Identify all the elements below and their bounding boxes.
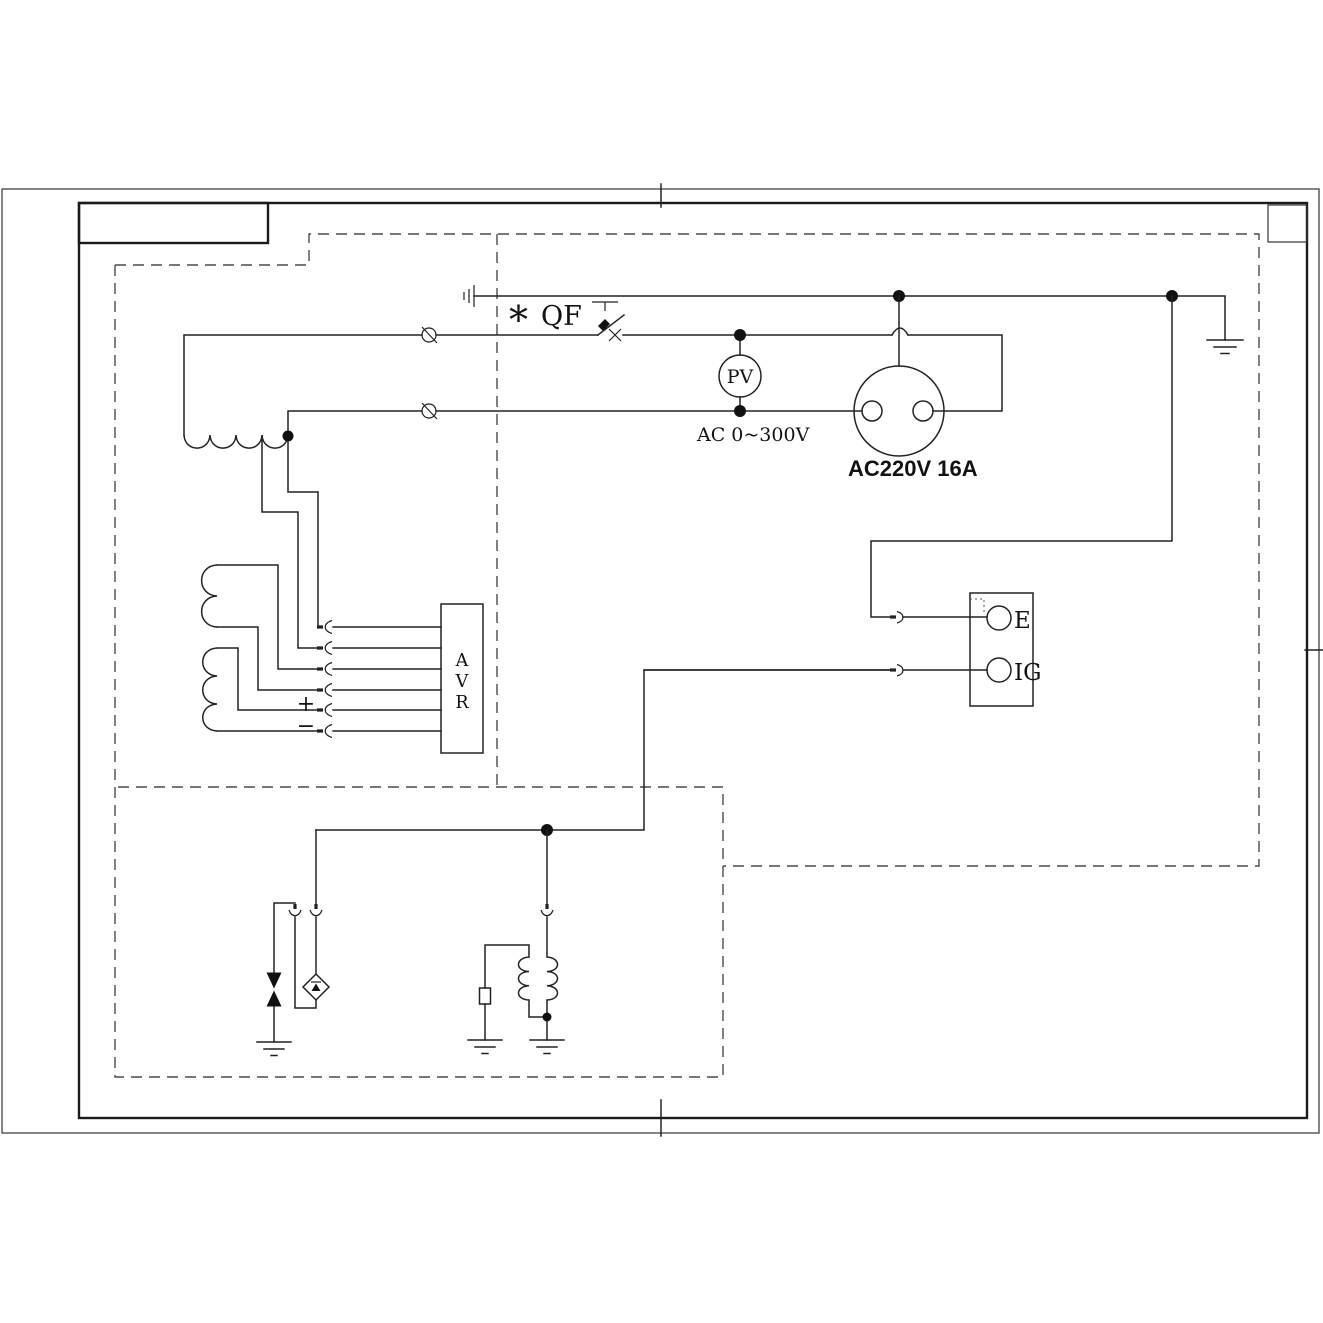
- earth-symbol: [530, 1040, 564, 1054]
- terminal-block: E IG: [644, 296, 1172, 706]
- connector-cup: [310, 904, 322, 916]
- avr-wire-1: [288, 441, 322, 627]
- outer-border: [2, 189, 1319, 1133]
- exciter-windings: [202, 565, 217, 731]
- ignition-coil-primary: [547, 957, 558, 1000]
- resistor: [480, 988, 491, 1004]
- junction-dot: [734, 405, 746, 417]
- exciter-coil-upper: [202, 565, 217, 627]
- trigger-branch: [257, 903, 295, 1056]
- generator-boundary: [115, 234, 1259, 866]
- schematic-canvas: * QF PV AC 0~300V AC220V 16A: [0, 0, 1323, 1323]
- avr-wire-4: [217, 627, 322, 690]
- phase-wire-left: [184, 335, 422, 435]
- socket-rating-label: AC220V 16A: [848, 456, 978, 481]
- ignition-coil-secondary: [519, 957, 530, 1000]
- avr-unit: + − A V R: [217, 436, 483, 753]
- rectifier-bottom-wire: [295, 917, 316, 1008]
- earth-symbol-right: [1207, 340, 1243, 354]
- socket-pin-right: [913, 401, 933, 421]
- junction-dot: [543, 1013, 552, 1022]
- ignition-coil-branch: [468, 830, 564, 1054]
- earth-symbol-left: [464, 285, 474, 307]
- voltmeter-pv: PV AC 0~300V: [696, 329, 810, 446]
- dashed-boundaries: [115, 234, 1259, 1077]
- breaker-cross: [609, 329, 621, 341]
- earth-symbol: [257, 1042, 291, 1056]
- breaker-label: QF: [541, 301, 582, 332]
- terminal-e-lug: [987, 606, 1011, 630]
- breaker-trip-bar: [592, 302, 618, 311]
- avr-letter-a: A: [455, 651, 469, 671]
- avr-letter-v: V: [455, 672, 469, 692]
- avr-wire-2: [262, 436, 322, 648]
- drawing-frame: [2, 184, 1323, 1136]
- breaker-contact: [598, 319, 610, 331]
- coil-secondary-top-wire: [485, 945, 529, 988]
- avr-letter-r: R: [455, 693, 469, 713]
- title-block-right: [1268, 205, 1307, 242]
- junction-dot: [283, 431, 294, 442]
- breaker-star-label: *: [509, 298, 528, 342]
- voltmeter-label: PV: [727, 366, 754, 388]
- connector-cup: [541, 904, 553, 916]
- power-socket: AC220V 16A: [848, 296, 1002, 481]
- diode-symbol: [312, 984, 321, 992]
- trigger-wire: [274, 903, 295, 972]
- junction-dot: [734, 329, 746, 341]
- connector-symbol: [422, 403, 437, 419]
- avr-wire-3: [217, 565, 322, 669]
- schematic-page: * QF PV AC 0~300V AC220V 16A: [0, 0, 1323, 1323]
- connector-pair-ig: [890, 665, 987, 677]
- socket-body: [854, 366, 944, 456]
- title-block-left: [79, 203, 268, 243]
- bidirectional-diode-lower: [267, 991, 282, 1007]
- wire-hop: [892, 328, 908, 335]
- terminal-block-corner-mark: [971, 599, 984, 612]
- exciter-coil-lower: [203, 648, 217, 731]
- minus-label: −: [297, 714, 315, 739]
- connector-pair-e: [890, 612, 987, 624]
- terminal-ig-label: IG: [1014, 660, 1041, 686]
- terminal-e-label: E: [1014, 608, 1031, 634]
- socket-pin-left: [862, 401, 882, 421]
- voltmeter-range-label: AC 0~300V: [696, 424, 810, 446]
- connector-symbol: [422, 327, 437, 343]
- connector-cup: [289, 904, 301, 916]
- avr-connectors: [317, 621, 441, 738]
- inner-border: [79, 203, 1307, 1118]
- neutral-wire-left: [288, 411, 422, 435]
- ig-to-engine-wire: [316, 670, 890, 830]
- terminal-ig-lug: [987, 658, 1011, 682]
- stator-coil: [184, 435, 288, 448]
- earth-symbol: [468, 1040, 502, 1054]
- bidirectional-diode-upper: [267, 973, 282, 989]
- ground-bus-wire: [474, 296, 1225, 340]
- rectifier-branch: [289, 830, 329, 1008]
- engine-section: [257, 670, 890, 1056]
